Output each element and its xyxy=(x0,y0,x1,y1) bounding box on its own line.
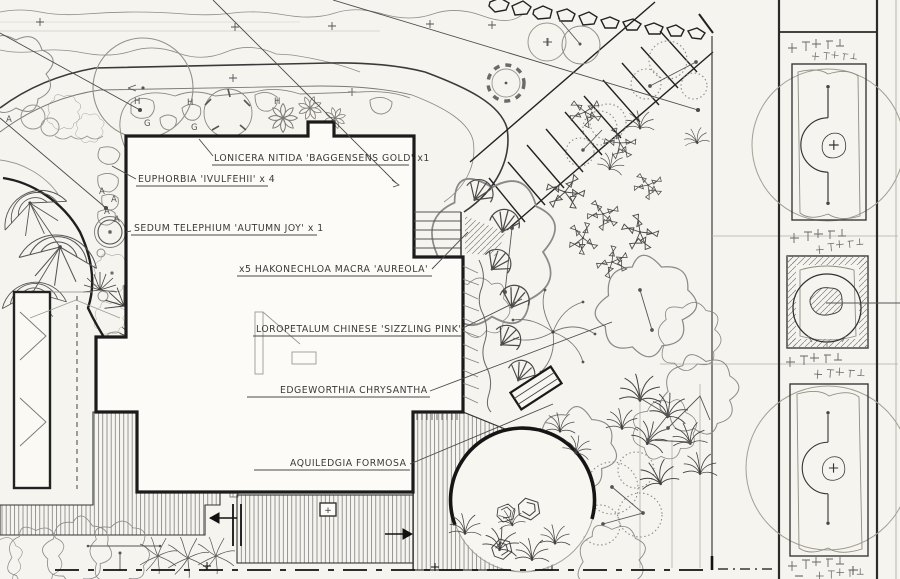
label-lonicera: LONICERA NITIDA 'BAGGENSENS GOLD' x1 xyxy=(214,153,430,164)
label-hakonechloa: x5 HAKONECHLOA MACRA 'AUREOLA' xyxy=(239,264,428,275)
bed-letter: A xyxy=(99,187,105,197)
label-loropetalum: LOROPETALUM CHINESE 'SIZZLING PINK' xyxy=(256,324,461,335)
site-plan-drawing: + xyxy=(0,0,900,579)
label-edgeworthia: EDGEWORTHIA CHRYSANTHA xyxy=(280,385,428,396)
bed-letter: A xyxy=(104,207,110,217)
bed-letter: H xyxy=(274,97,280,107)
bed-letter: A xyxy=(114,215,120,225)
bed-letter: A xyxy=(111,195,117,205)
bed-letter: G xyxy=(191,123,198,133)
bed-letter: H xyxy=(134,97,140,107)
deck-light-marker: + xyxy=(320,503,336,516)
bed-letter: A xyxy=(6,115,12,125)
bed-letter: H xyxy=(187,98,193,108)
deck-marker-plus: + xyxy=(324,506,332,516)
label-euphorbia: EUPHORBIA 'IVULFEHII' x 4 xyxy=(138,174,275,185)
landscape-plan-sheet: + xyxy=(0,0,900,579)
bed-letter: G xyxy=(144,119,151,129)
label-sedum: SEDUM TELEPHIUM 'AUTUMN JOY' x 1 xyxy=(134,223,324,234)
label-aquilegia: AQUILEDGIA FORMOSA xyxy=(290,458,407,469)
